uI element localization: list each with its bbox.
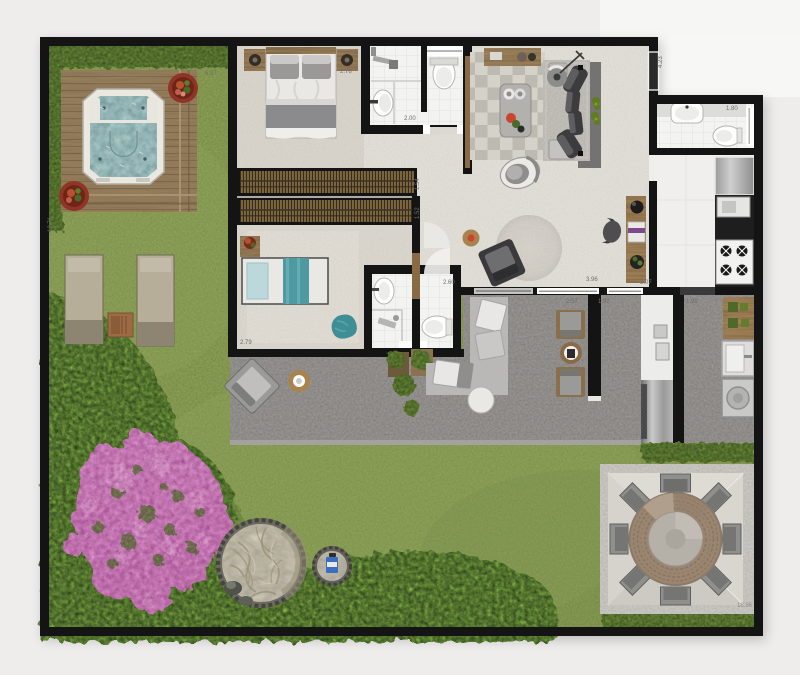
svg-text:4.23: 4.23 — [658, 56, 664, 68]
svg-text:1.54: 1.54 — [415, 178, 421, 190]
svg-text:1.98: 1.98 — [686, 299, 698, 305]
svg-text:12.71: 12.71 — [48, 216, 54, 232]
svg-text:2.79: 2.79 — [240, 340, 252, 346]
svg-text:18.96: 18.96 — [737, 603, 753, 609]
svg-text:2.57: 2.57 — [566, 299, 578, 305]
svg-text:2.00: 2.00 — [404, 116, 416, 122]
svg-text:3.96: 3.96 — [586, 277, 598, 283]
svg-text:1.80: 1.80 — [726, 106, 738, 112]
svg-text:5.97: 5.97 — [205, 71, 217, 77]
svg-text:1.52: 1.52 — [415, 207, 421, 219]
svg-text:1.6: 1.6 — [690, 446, 697, 452]
svg-text:3.07: 3.07 — [640, 280, 652, 286]
svg-text:2.60: 2.60 — [443, 280, 455, 286]
svg-text:1.92: 1.92 — [598, 299, 610, 305]
svg-text:2.76: 2.76 — [340, 69, 352, 75]
